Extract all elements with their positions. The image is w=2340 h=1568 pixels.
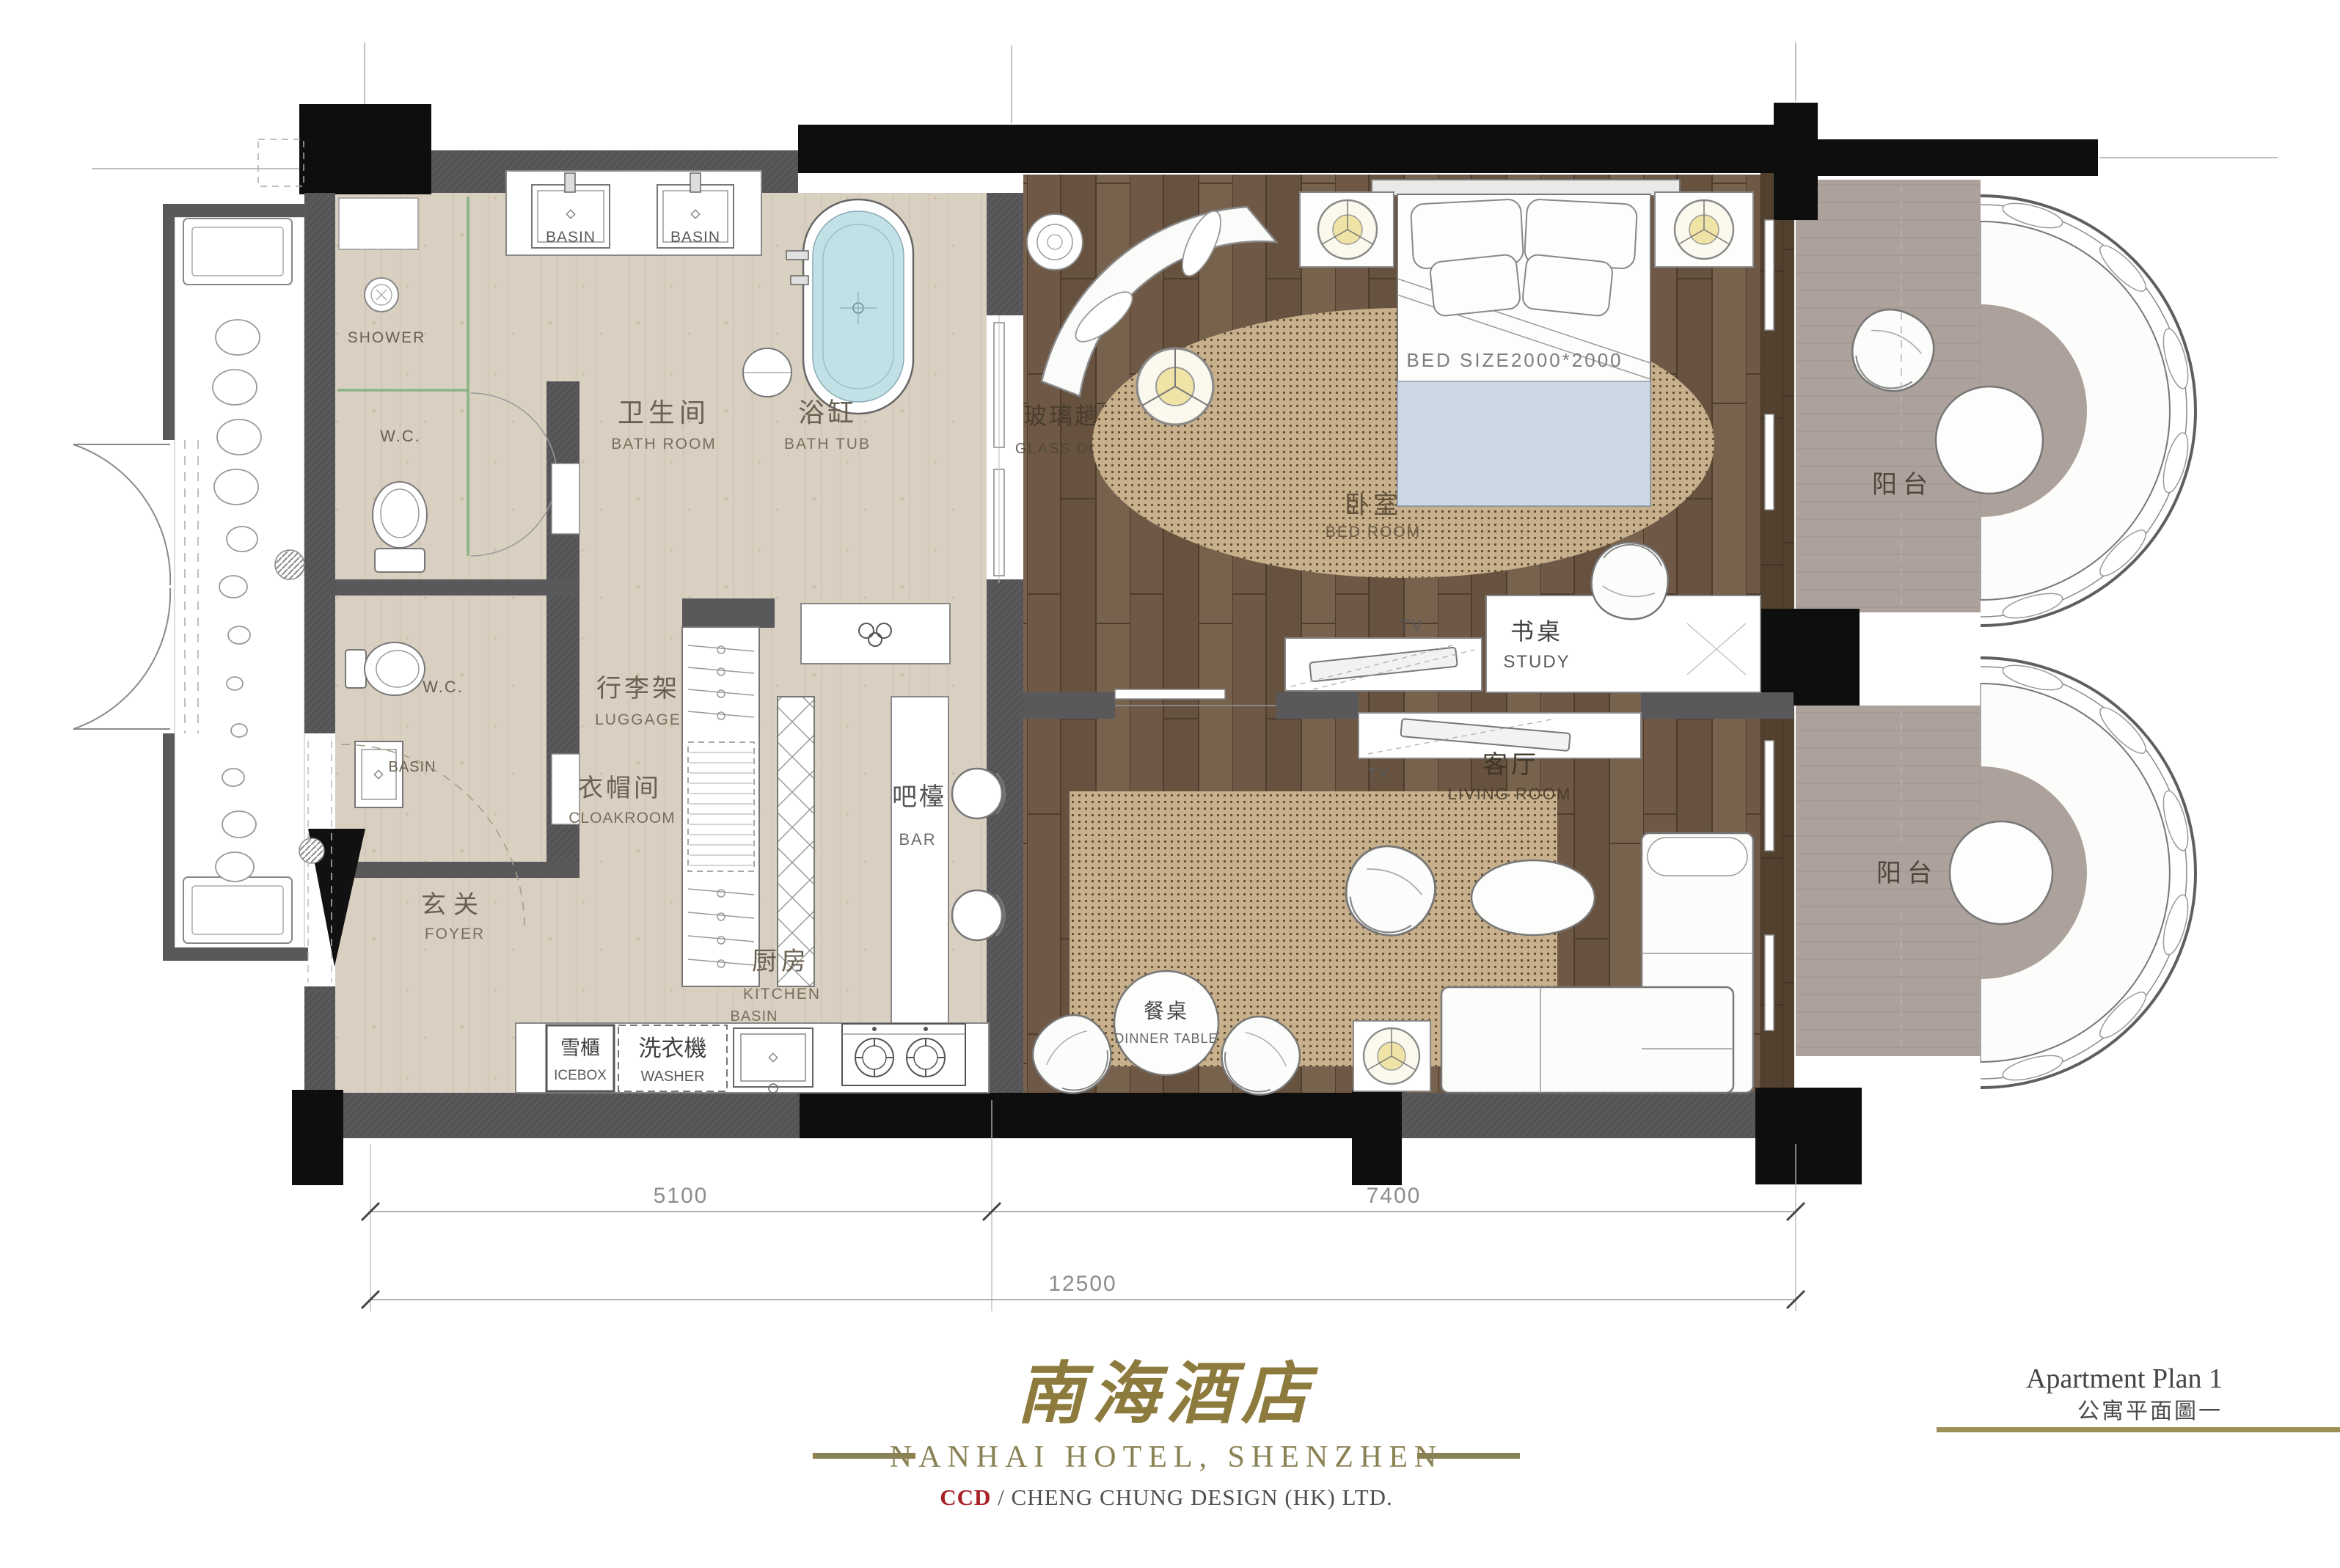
kitchen-label-zh: 厨房 [752, 948, 811, 975]
firm-rest: / CHENG CHUNG DESIGN (HK) LTD. [991, 1484, 1392, 1510]
kitchen-basin-label: BASIN [730, 1008, 778, 1025]
sliding-door-leaf [1115, 689, 1225, 699]
bedroom-floor-lamp [1137, 348, 1213, 425]
column-bottom-right [1755, 1088, 1862, 1184]
column-bottom-mid [1352, 1090, 1402, 1185]
tv-bedroom-label: TV [1400, 616, 1424, 634]
entry-door-leaf-top [73, 444, 170, 585]
study-label-en: STUDY [1503, 652, 1570, 672]
bedroom-label-zh: 卧室 [1345, 491, 1402, 519]
luggage-label-en: LUGGAGE [595, 711, 681, 728]
design-firm: CCD / CHENG CHUNG DESIGN (HK) LTD. [940, 1484, 1393, 1510]
icebox-label-en: ICEBOX [554, 1068, 607, 1083]
kitchen-label-en: KITCHEN [743, 986, 821, 1003]
foyer-label-en: FOYER [425, 926, 485, 942]
icebox-label-zh: 雪櫃 [560, 1037, 600, 1059]
basin-right-fixture: BASIN [657, 173, 734, 248]
basin-left-fixture: BASIN [532, 173, 610, 248]
wall-mid-band-b [1276, 692, 1359, 719]
column-bottom-left [292, 1090, 343, 1185]
wall-mid-band-c [1641, 692, 1794, 719]
plan-title-zh: 公寓平面圖一 [2077, 1399, 2223, 1424]
wall-cloakroom-stub [682, 598, 775, 628]
corridor-wall-down [163, 733, 175, 961]
bar-label-zh: 吧檯 [892, 783, 946, 811]
bed: BED SIZE2000*2000 [1372, 180, 1680, 506]
hotel-name: NANHAI HOTEL, SHENZHEN [890, 1440, 1443, 1474]
column-top-left [299, 104, 431, 194]
wall-left-upper [304, 193, 335, 733]
wall-mid-vertical-down [987, 579, 1023, 1093]
balcony-round-table [1950, 821, 2052, 924]
living-label-en: LIVING ROOM [1448, 785, 1572, 803]
balcony-top-floor [1796, 180, 1981, 612]
wc1-door [552, 464, 579, 534]
bathtub-label-en: BATH TUB [784, 436, 871, 453]
foyer-label-zh: 玄关 [421, 891, 486, 919]
washer-box: 洗衣機 WASHER [618, 1025, 727, 1091]
balcony-round-table [1936, 386, 2043, 494]
column-mid-right [1749, 609, 1860, 706]
divider-right [1417, 1453, 1520, 1459]
bar-label-en: BAR [899, 830, 936, 849]
floor-drain [275, 550, 304, 579]
wall-wc2-bottom [335, 862, 579, 878]
footer: 南海酒店 NANHAI HOTEL, SHENZHEN CCD / CHENG … [813, 1357, 2340, 1510]
shower-label: SHOWER [348, 329, 426, 346]
title-underline [1937, 1427, 2340, 1432]
shower-shelf [339, 198, 418, 249]
nightstand-left [1300, 192, 1394, 267]
floor-drain [299, 838, 324, 863]
wall-wc-divider [335, 579, 579, 596]
wall-mid-band-a [1023, 692, 1115, 719]
wc-basin-label: BASIN [388, 759, 436, 775]
balcony-bottom-label: 阳台 [1876, 860, 1938, 887]
study-label-zh: 书桌 [1510, 618, 1563, 645]
washer-label-zh: 洗衣機 [639, 1036, 707, 1061]
corridor-wall-bottom [163, 948, 308, 961]
icebox-box: 雪櫃 ICEBOX [546, 1025, 614, 1091]
dim-total: 12500 [1048, 1272, 1116, 1296]
bed-size-label: BED SIZE2000*2000 [1406, 349, 1623, 371]
dining-table [1114, 971, 1218, 1075]
hotel-logo-calligraphy: 南海酒店 [1017, 1357, 1319, 1432]
kitchen-sink [734, 1028, 813, 1093]
dim-left: 5100 [654, 1184, 709, 1208]
dim-right: 7400 [1367, 1184, 1422, 1208]
corridor-wall-up [163, 204, 175, 440]
bathroom-label-zh: 卫生间 [618, 398, 710, 428]
plan-title-en: Apartment Plan 1 [2026, 1363, 2223, 1394]
dinner-table-label-en: DINNER TABLE [1114, 1031, 1218, 1046]
basin-left-label: BASIN [546, 229, 596, 246]
wall-bottom-black [800, 1093, 1401, 1138]
cloakroom-label-zh: 衣帽间 [578, 774, 662, 802]
wall-left-lower [304, 986, 335, 1093]
divider-left [813, 1453, 915, 1459]
living-label-zh: 客厅 [1482, 751, 1540, 779]
tv-living-label: TV [1367, 764, 1391, 783]
washer-label-en: WASHER [640, 1069, 704, 1085]
wall-mid-vertical-up [987, 193, 1023, 315]
entry-door-leaf-bottom [73, 588, 170, 729]
floor-plan-sheet: BASIN BASIN SHOWER [0, 0, 2340, 1568]
firm-abbr: CCD [940, 1484, 991, 1510]
wc-upper-label: W.C. [380, 427, 421, 445]
dinner-table-label-zh: 餐桌 [1144, 1000, 1189, 1022]
bathtub-label-zh: 浴缸 [798, 398, 857, 428]
corridor-wall-top [163, 204, 308, 217]
bathroom-label-en: BATH ROOM [611, 436, 717, 453]
stove [842, 1024, 965, 1085]
floor-plan-drawing: BASIN BASIN SHOWER [0, 0, 2340, 1568]
wall-top-black [798, 125, 1790, 173]
bedroom-label-en: BED ROOM [1326, 524, 1421, 541]
luggage-rack [682, 627, 759, 986]
luggage-label-zh: 行李架 [596, 675, 680, 703]
wall-top-right-black [1790, 139, 2098, 176]
wc-lower-label: W.C. [423, 678, 464, 696]
column-top-right [1774, 103, 1818, 220]
basin-right-label: BASIN [670, 229, 720, 246]
closet-strip [778, 697, 814, 986]
coffee-table [1471, 860, 1595, 935]
side-table-lamp [1353, 1021, 1430, 1091]
nightstand-right [1655, 192, 1753, 267]
balcony-top-label: 阳台 [1872, 471, 1934, 499]
cloakroom-label-en: CLOAKROOM [568, 810, 676, 827]
